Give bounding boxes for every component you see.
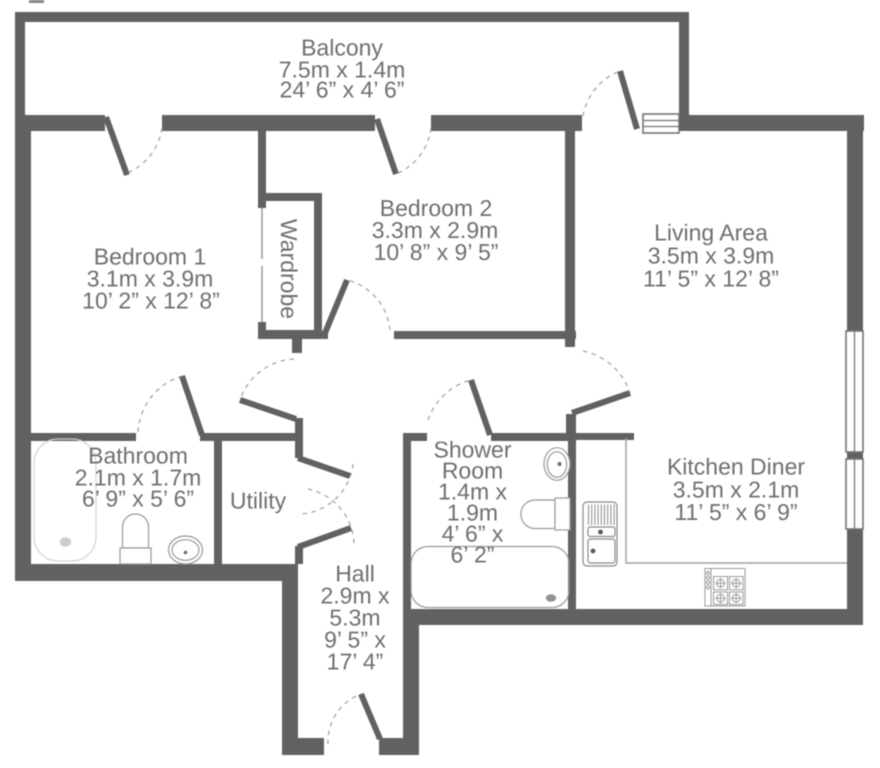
svg-text:6’ 9” x 5’ 6”: 6’ 9” x 5’ 6” <box>82 486 194 512</box>
svg-text:11’ 5” x 6’ 9”: 11’ 5” x 6’ 9” <box>674 499 797 525</box>
svg-text:11’ 5” x 12’ 8”: 11’ 5” x 12’ 8” <box>643 266 779 292</box>
svg-text:10’ 8” x 9’ 5”: 10’ 8” x 9’ 5” <box>374 239 499 265</box>
svg-text:Utility: Utility <box>230 488 287 514</box>
svg-text:6’ 2”: 6’ 2” <box>451 542 495 568</box>
svg-text:10’ 2” x 12’ 8”: 10’ 2” x 12’ 8” <box>82 288 220 314</box>
svg-text:24’ 6” x 4’ 6”: 24’ 6” x 4’ 6” <box>280 77 405 103</box>
svg-text:Wardrobe: Wardrobe <box>276 219 302 319</box>
svg-text:17’ 4”: 17’ 4” <box>327 649 384 675</box>
